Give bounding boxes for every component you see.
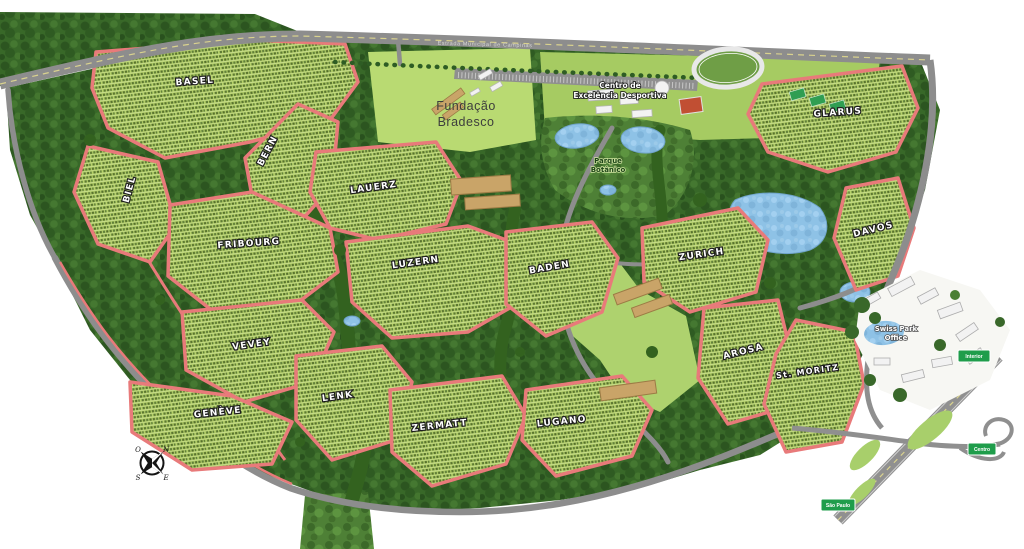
compass-s: S <box>136 474 141 482</box>
compass-rose: N E S O <box>129 440 174 485</box>
office-label-line1: Swiss Park <box>875 325 918 333</box>
lake <box>344 316 360 326</box>
office-label-line2: Office <box>885 334 908 342</box>
fundacao-label-line2: Bradesco <box>438 115 495 129</box>
red-court <box>679 97 703 115</box>
sign-south-label: São Paulo <box>826 503 850 509</box>
compass-n: N <box>162 446 170 454</box>
compass-e: E <box>162 474 168 482</box>
sign-south: São Paulo <box>821 499 855 511</box>
botanic-label-line1: Parque <box>594 157 622 165</box>
sports-label-line2: Excelência Desportiva <box>573 91 666 100</box>
map-canvas: BASEL BERN BIEL FRIBOURG LAUERZ LUZERN B… <box>0 0 1024 549</box>
sports-label-line1: Centro de <box>599 81 640 90</box>
sign-north-label: Interior <box>965 354 982 360</box>
lake <box>600 185 616 195</box>
interchange-loop <box>985 419 1012 444</box>
sign-north: Interior <box>958 350 990 362</box>
masterplan-map: BASEL BERN BIEL FRIBOURG LAUERZ LUZERN B… <box>0 0 1024 549</box>
compass-o: O <box>135 446 141 454</box>
botanic-label-line2: Botânico <box>591 166 626 174</box>
sign-east: Centro <box>968 443 996 455</box>
fundacao-label-line1: Fundação <box>436 99 496 113</box>
sign-east-label: Centro <box>974 447 990 453</box>
